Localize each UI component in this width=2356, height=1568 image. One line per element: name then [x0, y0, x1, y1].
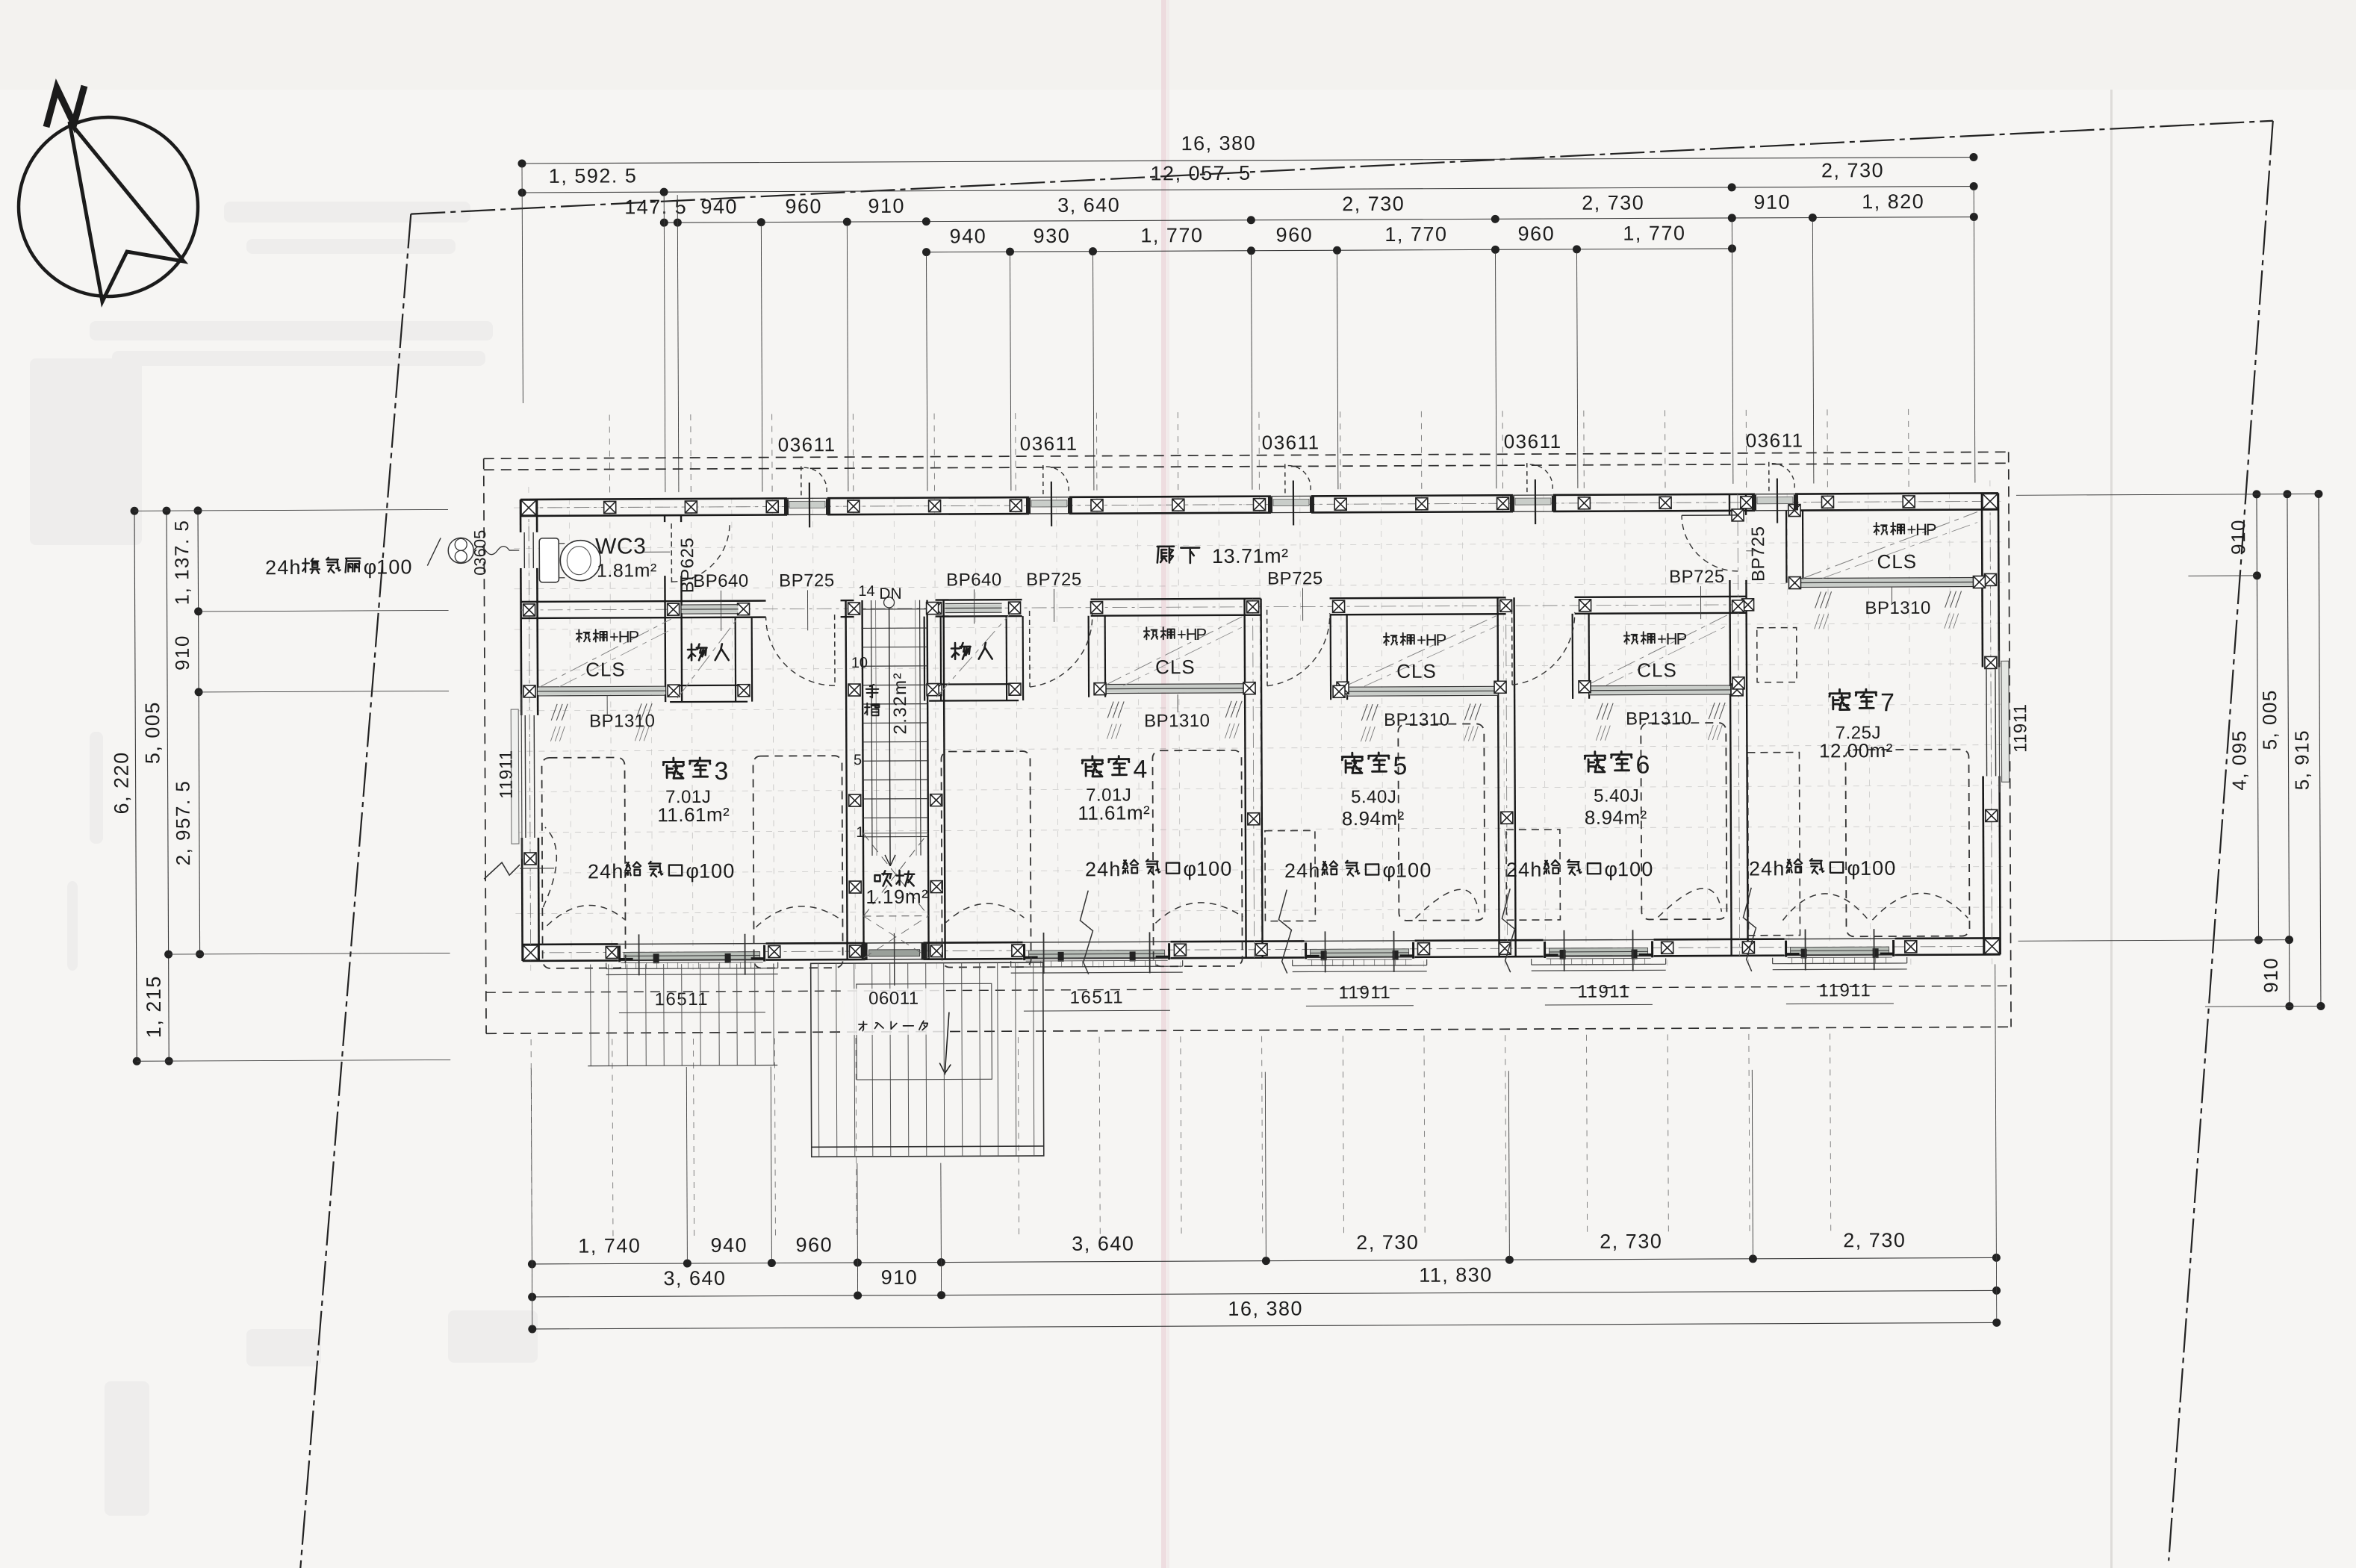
svg-text:φ: φ [1604, 858, 1617, 880]
svg-text:03611: 03611 [1262, 431, 1320, 453]
svg-text:4: 4 [1133, 756, 1147, 784]
svg-text:3: 3 [714, 757, 728, 785]
svg-text:0: 0 [711, 860, 722, 883]
svg-text:6, 220: 6, 220 [110, 751, 132, 814]
svg-text:BP725: BP725 [1026, 570, 1082, 590]
svg-text:12.00m²: 12.00m² [1819, 739, 1893, 762]
svg-text:h: h [1308, 859, 1320, 882]
svg-text:1: 1 [1617, 858, 1629, 880]
svg-text:03611: 03611 [1504, 430, 1562, 452]
svg-text:10: 10 [851, 655, 868, 671]
svg-text:BP640: BP640 [946, 570, 1002, 590]
svg-text:1.19m²: 1.19m² [865, 886, 928, 908]
svg-text:0: 0 [1408, 859, 1419, 881]
svg-text:960: 960 [1518, 223, 1555, 245]
svg-text:960: 960 [795, 1233, 833, 1256]
svg-text:h: h [1530, 859, 1541, 881]
svg-text:0: 0 [400, 556, 411, 578]
svg-text:03611: 03611 [1020, 432, 1078, 455]
svg-text:0: 0 [1872, 857, 1883, 880]
svg-text:3, 640: 3, 640 [1057, 194, 1120, 217]
svg-text:WC3: WC3 [595, 534, 646, 559]
svg-text:0: 0 [1220, 858, 1231, 880]
svg-text:BP725: BP725 [1267, 568, 1323, 588]
svg-text:11911: 11911 [1338, 983, 1391, 1003]
svg-text:03611: 03611 [778, 433, 836, 455]
svg-text:5, 005: 5, 005 [141, 701, 164, 764]
svg-text:BP1310: BP1310 [1865, 598, 1931, 618]
svg-text:φ: φ [364, 556, 377, 579]
svg-text:1, 215: 1, 215 [143, 975, 165, 1038]
svg-text:4: 4 [277, 556, 288, 579]
svg-text:1, 820: 1, 820 [1862, 190, 1924, 213]
svg-text:2: 2 [588, 860, 599, 883]
svg-text:8.94m²: 8.94m² [1342, 807, 1405, 830]
svg-text:4, 095: 4, 095 [2228, 729, 2250, 790]
svg-text:910: 910 [171, 635, 193, 671]
svg-text:5.40J: 5.40J [1351, 787, 1396, 807]
svg-text:960: 960 [1276, 223, 1314, 246]
svg-text:1: 1 [699, 860, 710, 883]
svg-text:3, 640: 3, 640 [663, 1267, 726, 1289]
svg-text:h: h [1109, 858, 1120, 880]
svg-text:2: 2 [1506, 859, 1517, 881]
svg-text:P: P [1676, 629, 1687, 648]
svg-text:0: 0 [388, 556, 400, 578]
svg-text:6: 6 [1635, 751, 1650, 780]
svg-text:11911: 11911 [2010, 703, 2030, 753]
svg-text:0: 0 [723, 859, 734, 882]
svg-text:φ: φ [1382, 859, 1396, 882]
svg-text:2: 2 [1284, 859, 1296, 882]
svg-text:BP725: BP725 [1669, 567, 1725, 587]
svg-text:1, 137. 5: 1, 137. 5 [170, 520, 193, 606]
svg-text:5, 915: 5, 915 [2290, 729, 2313, 790]
svg-text:BP1310: BP1310 [1384, 710, 1450, 730]
svg-text:2, 730: 2, 730 [1843, 1229, 1906, 1251]
svg-text:910: 910 [2227, 519, 2249, 555]
svg-text:DN: DN [879, 585, 901, 603]
svg-text:3, 640: 3, 640 [1072, 1232, 1134, 1254]
svg-text:CLS: CLS [585, 658, 626, 680]
svg-text:2: 2 [1085, 858, 1096, 880]
svg-text:11.61m²: 11.61m² [657, 803, 730, 826]
svg-text:5: 5 [1393, 752, 1407, 780]
svg-text:910: 910 [2260, 957, 2282, 993]
svg-text:960: 960 [785, 195, 822, 217]
svg-text:11911: 11911 [496, 750, 516, 799]
svg-text:BP1310: BP1310 [589, 711, 656, 731]
svg-text:11.61m²: 11.61m² [1078, 801, 1150, 824]
svg-text:2, 957. 5: 2, 957. 5 [172, 780, 195, 866]
svg-text:h: h [612, 860, 623, 883]
svg-text:11911: 11911 [1818, 980, 1871, 1001]
svg-text:2.32m²: 2.32m² [890, 672, 910, 735]
svg-text:2, 730: 2, 730 [1821, 159, 1884, 181]
svg-text:1: 1 [856, 824, 864, 841]
svg-text:5: 5 [854, 752, 862, 768]
svg-text:BP1310: BP1310 [1144, 711, 1210, 731]
svg-text:910: 910 [881, 1266, 919, 1289]
svg-text:1: 1 [1196, 858, 1207, 880]
svg-text:2: 2 [265, 556, 276, 579]
svg-text:7: 7 [1880, 688, 1895, 717]
svg-text:16511: 16511 [1070, 987, 1125, 1007]
svg-text:4: 4 [1761, 857, 1772, 880]
svg-text:2: 2 [1749, 857, 1760, 880]
svg-text:06011: 06011 [868, 989, 919, 1009]
svg-text:CLS: CLS [1396, 660, 1437, 682]
svg-text:16, 380: 16, 380 [1228, 1297, 1303, 1319]
svg-text:4: 4 [1097, 858, 1108, 880]
svg-text:0: 0 [1208, 858, 1219, 880]
svg-text:2, 730: 2, 730 [1356, 1231, 1419, 1254]
svg-text:BP1310: BP1310 [1626, 709, 1692, 729]
svg-text:P: P [1435, 631, 1446, 650]
svg-text:0: 0 [1641, 858, 1653, 880]
svg-text:5, 005: 5, 005 [2258, 689, 2281, 750]
svg-text:4: 4 [1518, 859, 1529, 881]
svg-text:0: 0 [1629, 858, 1641, 880]
svg-text:4: 4 [1296, 859, 1308, 882]
svg-text:1: 1 [1860, 857, 1871, 880]
svg-text:P: P [1196, 625, 1207, 644]
svg-text:8.94m²: 8.94m² [1585, 806, 1647, 828]
svg-text:930: 930 [1034, 225, 1071, 247]
svg-text:CLS: CLS [1877, 550, 1917, 573]
svg-text:1, 770: 1, 770 [1623, 222, 1685, 244]
svg-text:940: 940 [950, 225, 987, 247]
svg-text:1: 1 [1396, 859, 1407, 882]
svg-text:1, 592. 5: 1, 592. 5 [549, 164, 638, 187]
svg-text:910: 910 [1753, 191, 1791, 214]
svg-text:1: 1 [376, 556, 388, 578]
svg-text:16, 380: 16, 380 [1181, 132, 1257, 155]
svg-text:φ: φ [686, 860, 699, 883]
svg-text:BP640: BP640 [693, 571, 749, 591]
svg-text:5.40J: 5.40J [1594, 785, 1639, 806]
svg-text:P: P [1926, 520, 1937, 539]
svg-text:03611: 03611 [1746, 429, 1804, 452]
svg-text:1, 770: 1, 770 [1384, 223, 1447, 246]
svg-text:14: 14 [858, 583, 874, 600]
svg-text:13.71m²: 13.71m² [1212, 545, 1289, 567]
svg-text:CLS: CLS [1637, 659, 1677, 681]
svg-text:h: h [289, 556, 300, 579]
svg-text:0: 0 [1420, 859, 1431, 881]
svg-text:φ: φ [1183, 858, 1196, 880]
svg-text:940: 940 [710, 1234, 747, 1257]
svg-text:2, 730: 2, 730 [1342, 193, 1405, 215]
svg-text:P: P [628, 627, 639, 646]
svg-text:2, 730: 2, 730 [1600, 1230, 1662, 1252]
svg-text:BP725: BP725 [779, 570, 835, 591]
svg-text:12, 057. 5: 12, 057. 5 [1150, 162, 1251, 185]
svg-text:1.81m²: 1.81m² [597, 560, 657, 581]
svg-text:2, 730: 2, 730 [1582, 191, 1644, 214]
svg-text:4: 4 [600, 860, 611, 883]
svg-text:1, 770: 1, 770 [1140, 224, 1203, 246]
svg-text:φ: φ [1847, 857, 1860, 880]
svg-text:11, 830: 11, 830 [1419, 1263, 1493, 1286]
svg-text:CLS: CLS [1155, 656, 1196, 678]
svg-text:0: 0 [1884, 857, 1895, 880]
svg-text:940: 940 [700, 196, 738, 218]
svg-text:11911: 11911 [1577, 982, 1630, 1002]
svg-text:1, 740: 1, 740 [578, 1234, 641, 1257]
svg-text:BP725: BP725 [1748, 526, 1768, 582]
svg-text:910: 910 [868, 195, 905, 217]
svg-text:h: h [1773, 857, 1784, 880]
